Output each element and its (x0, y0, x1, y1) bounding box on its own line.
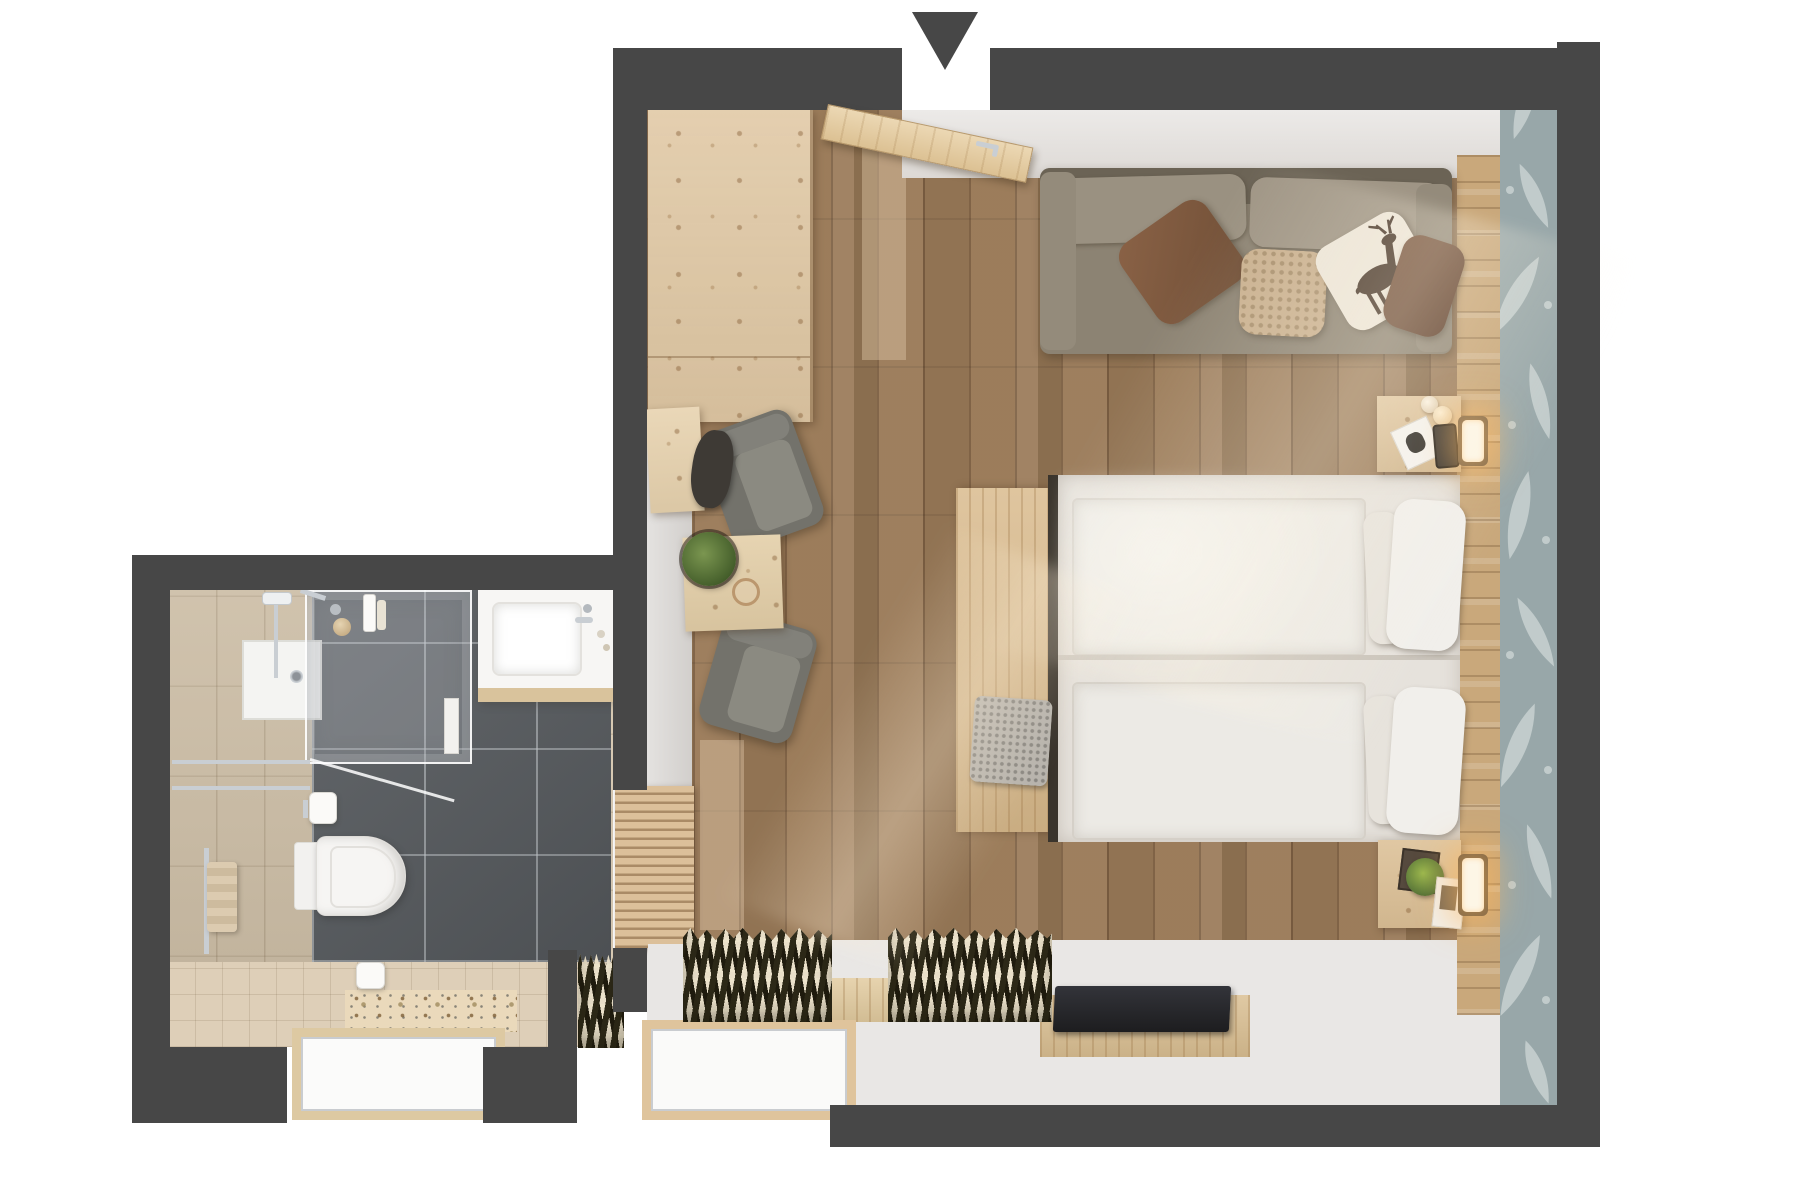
shower-towel (444, 698, 459, 754)
wallpaper-accent (1500, 110, 1557, 1105)
toiletry-bottle-2 (377, 600, 386, 630)
decor-ball (333, 618, 351, 636)
bathroom-south-wall-right (483, 1047, 577, 1123)
counter-wood-edge (478, 688, 613, 702)
wallpaper-botanical-motif (1500, 110, 1557, 1105)
wardrobe (648, 110, 813, 422)
nightstand-bottom (1378, 840, 1461, 928)
floor-plank-highlight (700, 740, 744, 930)
wardrobe-edge (648, 356, 810, 358)
mattress-seam (1058, 655, 1460, 660)
toiletry-bottle (363, 594, 376, 632)
curtain-right (888, 926, 1052, 1022)
soap-dispenser (597, 630, 605, 638)
armchair-seat (733, 437, 816, 534)
floor-plank-highlight (862, 140, 906, 360)
toilet-seat-line (330, 846, 396, 908)
duvet-right (1072, 682, 1366, 840)
tv-panel (1053, 986, 1231, 1032)
phone (1432, 423, 1460, 469)
bathroom-south-wall-left (132, 1047, 287, 1123)
window-threshold (830, 978, 896, 1022)
shower-drain (290, 670, 303, 683)
grab-bar-2 (172, 786, 310, 790)
floor-plan-canvas (0, 0, 1800, 1200)
duvet-left (1072, 498, 1366, 656)
shower-head (262, 592, 292, 605)
bathroom-north-wall (132, 555, 613, 590)
bedroom-west-wall-stub (613, 948, 647, 1012)
book-cover-art (1403, 430, 1428, 456)
cup (732, 578, 760, 606)
spare-paper-roll (356, 962, 385, 989)
bathroom-window-bay (292, 1028, 505, 1120)
soap-dispenser-2 (603, 644, 610, 651)
curtain-left (683, 926, 832, 1022)
entrance-arrow-icon (912, 12, 978, 70)
armchair-seat (725, 644, 802, 735)
towel (207, 862, 237, 932)
bedroom-west-wall (613, 48, 647, 790)
door-handle-post (992, 144, 999, 157)
toilet-paper-roll (309, 792, 337, 824)
bathroom-west-wall (132, 555, 170, 1123)
potted-plant (682, 532, 736, 586)
luggage-bench (615, 786, 694, 948)
photo-image (1439, 885, 1457, 911)
bedroom-north-wall-right (990, 48, 1600, 110)
toilet-paper-holder (303, 800, 308, 818)
bathroom-east-wall-stub (548, 950, 577, 1050)
bedroom-east-wall (1557, 42, 1600, 1147)
faucet (583, 604, 592, 613)
bed-pillow-large-1 (1385, 498, 1467, 653)
faucet-spout (575, 617, 593, 623)
table-lamp-2 (1433, 406, 1452, 425)
bedroom-south-wall (830, 1105, 1600, 1147)
shower-mixer (330, 604, 341, 615)
wall-sconce-top (1462, 420, 1484, 462)
basin (492, 602, 582, 676)
grab-bar (172, 760, 310, 764)
wall-sconce-bottom (1462, 858, 1484, 912)
bedroom-north-wall-left (613, 48, 902, 110)
knit-throw (969, 695, 1053, 786)
double-bed (1058, 475, 1460, 842)
terrazzo-sill (345, 990, 517, 1032)
bed-pillow-large-2 (1385, 686, 1467, 837)
sofa-armrest-left (1040, 172, 1076, 350)
nightstand-top (1377, 396, 1461, 472)
window-bay (642, 1020, 856, 1120)
